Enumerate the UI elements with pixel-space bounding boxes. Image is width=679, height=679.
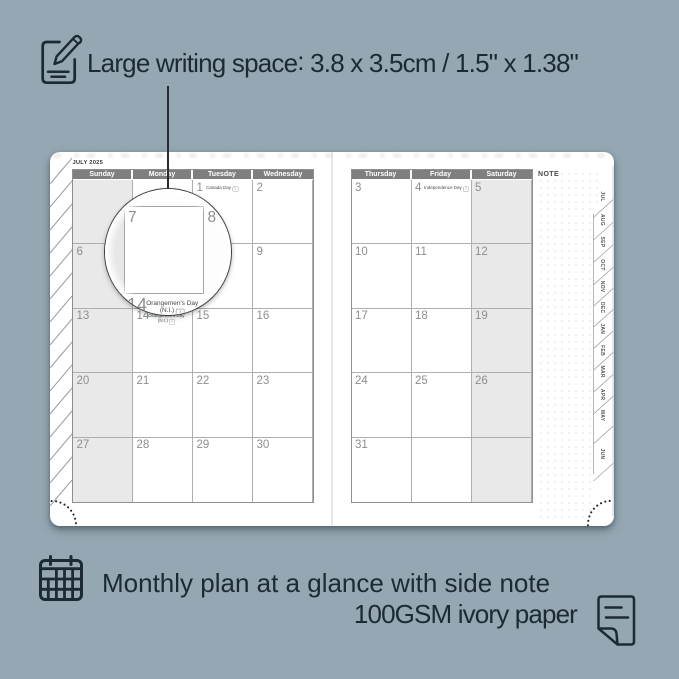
svg-text:OCT: OCT [599, 259, 605, 270]
svg-text:FEB: FEB [599, 345, 605, 356]
svg-text:APR: APR [599, 389, 605, 401]
svg-text:DEC: DEC [599, 302, 605, 314]
svg-text:AUG: AUG [599, 214, 605, 226]
svg-text:SEP: SEP [599, 237, 605, 248]
svg-text:MAR: MAR [599, 366, 605, 378]
svg-text:JUN: JUN [599, 449, 605, 460]
svg-text:JUL: JUL [599, 191, 605, 201]
svg-text:JAN: JAN [599, 323, 605, 334]
svg-text:NOV: NOV [599, 281, 605, 293]
svg-text:MAY: MAY [599, 410, 605, 422]
